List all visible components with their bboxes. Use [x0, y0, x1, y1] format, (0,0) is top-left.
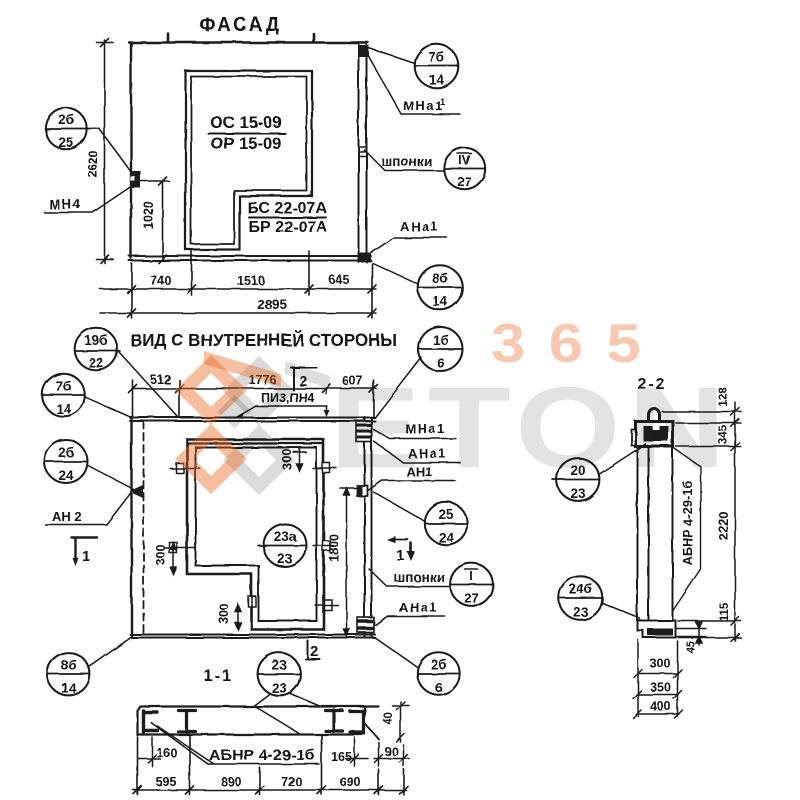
svg-text:2б: 2б — [58, 445, 74, 460]
svg-text:720: 720 — [281, 775, 302, 789]
svg-text:23а: 23а — [274, 529, 297, 544]
svg-text:2620: 2620 — [86, 150, 100, 178]
svg-text:БР 22-07А: БР 22-07А — [248, 219, 328, 236]
svg-text:24: 24 — [58, 468, 74, 483]
svg-text:27: 27 — [457, 174, 471, 189]
svg-text:8б: 8б — [61, 658, 77, 673]
svg-text:14: 14 — [61, 681, 77, 696]
svg-text:I: I — [470, 570, 473, 584]
svg-text:ФАСАД: ФАСАД — [199, 14, 282, 36]
svg-text:8б: 8б — [432, 271, 448, 286]
svg-text:400: 400 — [650, 700, 671, 714]
svg-text:690: 690 — [340, 775, 361, 789]
svg-text:595: 595 — [156, 775, 177, 789]
svg-text:24: 24 — [438, 530, 454, 545]
svg-text:ОР 15-09: ОР 15-09 — [211, 135, 282, 153]
svg-text:АБНР 4-29-1б: АБНР 4-29-1б — [680, 481, 695, 566]
svg-text:2б: 2б — [58, 112, 74, 127]
svg-text:1510: 1510 — [237, 274, 265, 288]
svg-text:27: 27 — [464, 591, 478, 606]
svg-text:7б: 7б — [56, 379, 72, 394]
svg-text:14: 14 — [432, 294, 448, 309]
svg-text:23: 23 — [573, 605, 589, 620]
svg-text:24б: 24б — [569, 582, 592, 597]
svg-text:23: 23 — [271, 658, 287, 673]
svg-text:300: 300 — [650, 657, 671, 671]
svg-text:1800: 1800 — [327, 534, 341, 562]
svg-text:ВИД С ВНУТРЕННЕЙ СТОРОНЫ: ВИД С ВНУТРЕННЕЙ СТОРОНЫ — [130, 329, 397, 350]
svg-text:25: 25 — [58, 135, 74, 150]
svg-text:2895: 2895 — [257, 297, 288, 312]
svg-text:IV: IV — [459, 154, 471, 168]
svg-text:165: 165 — [331, 750, 352, 764]
svg-text:1: 1 — [396, 547, 404, 564]
svg-text:14: 14 — [56, 402, 72, 417]
svg-text:645: 645 — [329, 273, 350, 287]
svg-text:115: 115 — [719, 602, 731, 621]
svg-text:14: 14 — [429, 73, 445, 88]
svg-text:БС 22-07А: БС 22-07А — [247, 200, 327, 217]
svg-text:АБНР 4-29-1б: АБНР 4-29-1б — [209, 748, 315, 764]
svg-text:АН 2: АН 2 — [52, 509, 82, 524]
svg-text:300: 300 — [217, 603, 231, 624]
svg-text:40: 40 — [383, 712, 395, 725]
svg-text:300: 300 — [154, 545, 168, 566]
svg-text:1: 1 — [440, 97, 446, 108]
svg-text:25: 25 — [438, 507, 454, 522]
svg-text:шпонки: шпонки — [394, 570, 445, 585]
svg-text:6: 6 — [435, 680, 443, 695]
svg-text:890: 890 — [221, 775, 242, 789]
svg-text:1-1: 1-1 — [204, 668, 233, 685]
svg-text:19б: 19б — [84, 333, 107, 348]
svg-text:350: 350 — [650, 681, 671, 695]
svg-text:шпонки: шпонки — [381, 154, 432, 169]
svg-text:23: 23 — [277, 552, 293, 567]
svg-text:МН4: МН4 — [49, 197, 82, 212]
svg-text:22: 22 — [88, 356, 103, 371]
svg-text:2б: 2б — [431, 657, 447, 672]
svg-text:2: 2 — [310, 643, 318, 660]
svg-text:45: 45 — [685, 641, 697, 653]
svg-text:740: 740 — [151, 274, 172, 288]
svg-text:ETON: ETON — [330, 363, 733, 492]
svg-text:2220: 2220 — [716, 511, 731, 540]
svg-text:ОС 15-09: ОС 15-09 — [210, 114, 282, 132]
svg-text:1б: 1б — [433, 333, 449, 348]
svg-text:МНа1: МНа1 — [403, 98, 444, 113]
svg-text:1020: 1020 — [142, 201, 156, 229]
svg-text:90: 90 — [385, 745, 399, 759]
svg-text:АНа1: АНа1 — [399, 600, 438, 615]
svg-text:23: 23 — [271, 681, 287, 696]
svg-text:1: 1 — [82, 548, 90, 565]
svg-text:160: 160 — [156, 746, 177, 760]
svg-text:512: 512 — [150, 373, 171, 387]
svg-text:АНа1: АНа1 — [400, 219, 439, 234]
svg-text:7б: 7б — [429, 50, 445, 65]
